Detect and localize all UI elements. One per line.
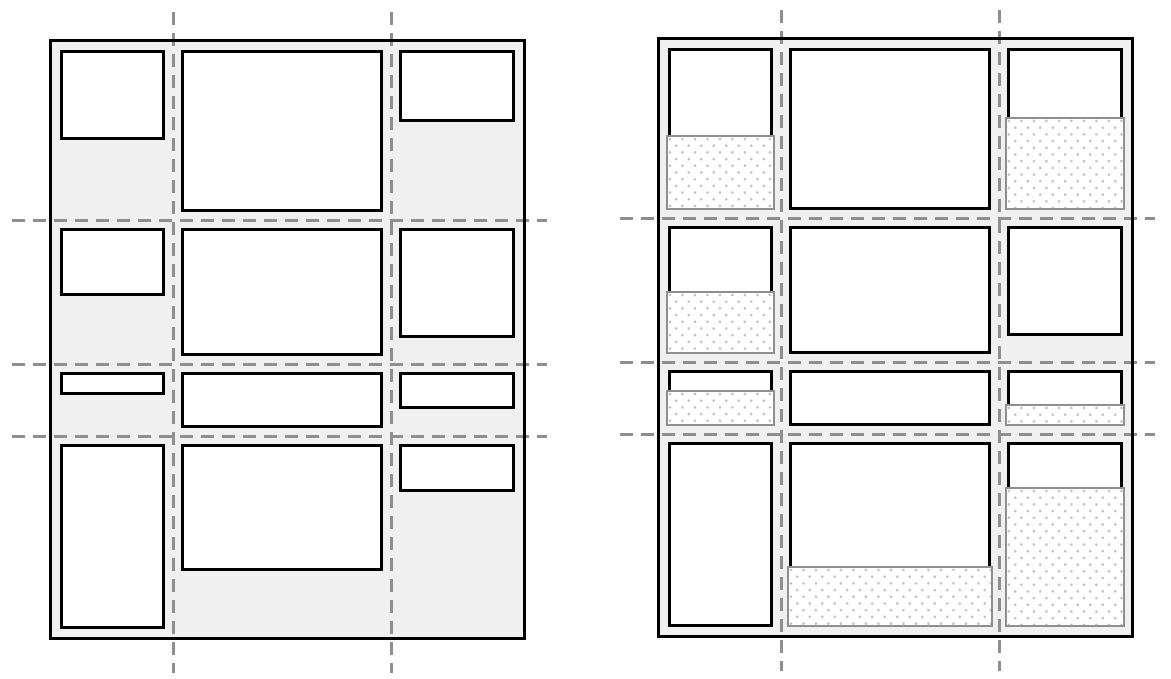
grid-cell-r4c1 <box>660 434 781 635</box>
grid-item <box>60 372 165 395</box>
grid-cell-r4c3 <box>999 434 1131 635</box>
grid-cell-r3c2 <box>781 362 999 434</box>
grid-cell-r2c1 <box>52 220 173 364</box>
stretch-area <box>787 566 993 627</box>
grid-cell-r2c2 <box>173 220 391 364</box>
stretch-area <box>1005 117 1125 210</box>
grid-item <box>399 50 515 122</box>
grid-item <box>60 228 165 296</box>
grid-cell-r1c1 <box>52 42 173 220</box>
grid-cell-r3c3 <box>391 364 523 436</box>
stretch-area <box>1005 487 1125 627</box>
grid-item <box>181 372 383 428</box>
grid-cell-r4c3 <box>391 436 523 637</box>
grid-item <box>789 370 991 426</box>
stretch-area <box>1005 404 1125 426</box>
grid-item <box>399 444 515 492</box>
stretch-area <box>666 291 775 354</box>
grid-item <box>668 48 773 138</box>
grid-cell-r2c2 <box>781 218 999 362</box>
grid-item <box>789 442 991 569</box>
grid-cell-r2c1 <box>660 218 781 362</box>
stretch-area <box>666 135 775 210</box>
grid-cell-r1c1 <box>660 40 781 218</box>
diagram-canvas <box>0 0 1171 679</box>
grid-item <box>1007 226 1123 336</box>
grid-item <box>668 226 773 294</box>
grid-item <box>1007 370 1123 407</box>
grid-item <box>789 226 991 354</box>
grid-cell-r3c1 <box>52 364 173 436</box>
grid-item <box>789 48 991 210</box>
grid-cell-r3c2 <box>173 364 391 436</box>
figure-natural <box>49 39 526 640</box>
grid-cell-r1c3 <box>391 42 523 220</box>
grid-cell-r4c2 <box>781 434 999 635</box>
figure-stretched <box>657 37 1134 638</box>
grid-item <box>60 444 165 629</box>
grid-cell-r3c1 <box>660 362 781 434</box>
stretch-area <box>666 390 775 426</box>
grid-cell-r4c2 <box>173 436 391 637</box>
grid-item <box>668 442 773 627</box>
grid-cell-r2c3 <box>999 218 1131 362</box>
grid-item <box>181 50 383 212</box>
grid-cell-r1c2 <box>173 42 391 220</box>
grid-item <box>60 50 165 140</box>
grid-item <box>181 444 383 571</box>
grid-item <box>399 228 515 338</box>
grid-cell-r2c3 <box>391 220 523 364</box>
grid-cell-r1c2 <box>781 40 999 218</box>
grid-item <box>181 228 383 356</box>
grid-cell-r1c3 <box>999 40 1131 218</box>
grid-cell-r4c1 <box>52 436 173 637</box>
grid-item <box>1007 48 1123 120</box>
grid-cell-r3c3 <box>999 362 1131 434</box>
grid-item <box>399 372 515 409</box>
grid-item <box>1007 442 1123 490</box>
